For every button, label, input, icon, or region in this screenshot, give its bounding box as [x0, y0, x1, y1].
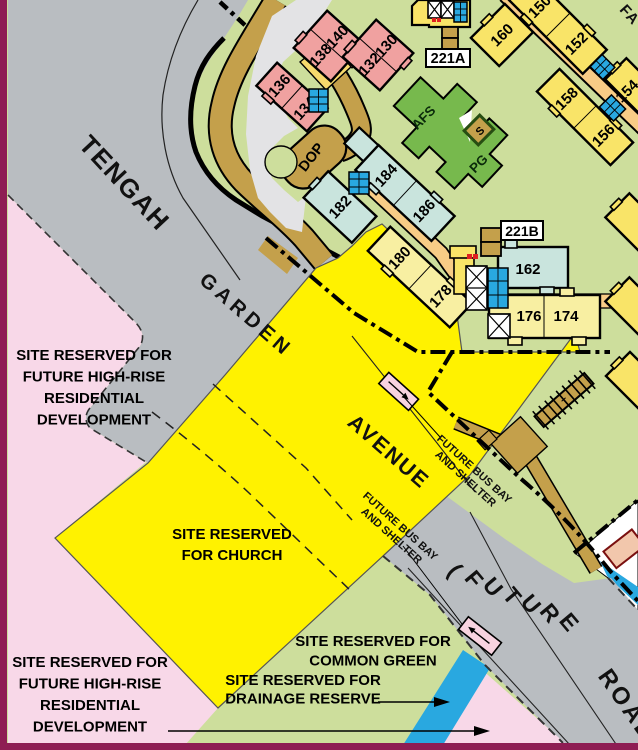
svg-text:221B: 221B	[505, 223, 538, 239]
svg-text:SITE RESERVED FOR: SITE RESERVED FOR	[295, 633, 451, 650]
svg-text:RESIDENTIAL: RESIDENTIAL	[44, 390, 144, 407]
svg-text:SITE RESERVED: SITE RESERVED	[172, 526, 292, 543]
svg-text:DEVELOPMENT: DEVELOPMENT	[33, 719, 147, 736]
svg-text:221A: 221A	[431, 51, 466, 67]
svg-text:162: 162	[515, 261, 540, 278]
svg-text:174: 174	[553, 308, 579, 325]
svg-text:SITE RESERVED FOR: SITE RESERVED FOR	[225, 672, 381, 689]
svg-text:FUTURE HIGH-RISE: FUTURE HIGH-RISE	[23, 369, 166, 386]
svg-text:SITE RESERVED FOR: SITE RESERVED FOR	[16, 347, 172, 364]
svg-text:DEVELOPMENT: DEVELOPMENT	[37, 412, 151, 429]
svg-text:SITE RESERVED FOR: SITE RESERVED FOR	[12, 654, 168, 671]
svg-text:COMMON GREEN: COMMON GREEN	[309, 653, 437, 670]
svg-text:RESIDENTIAL: RESIDENTIAL	[40, 697, 140, 714]
svg-text:FOR CHURCH: FOR CHURCH	[182, 547, 283, 564]
svg-text:176: 176	[516, 308, 541, 325]
svg-text:FUTURE HIGH-RISE: FUTURE HIGH-RISE	[19, 676, 162, 693]
svg-text:DRAINAGE RESERVE: DRAINAGE RESERVE	[225, 691, 381, 708]
